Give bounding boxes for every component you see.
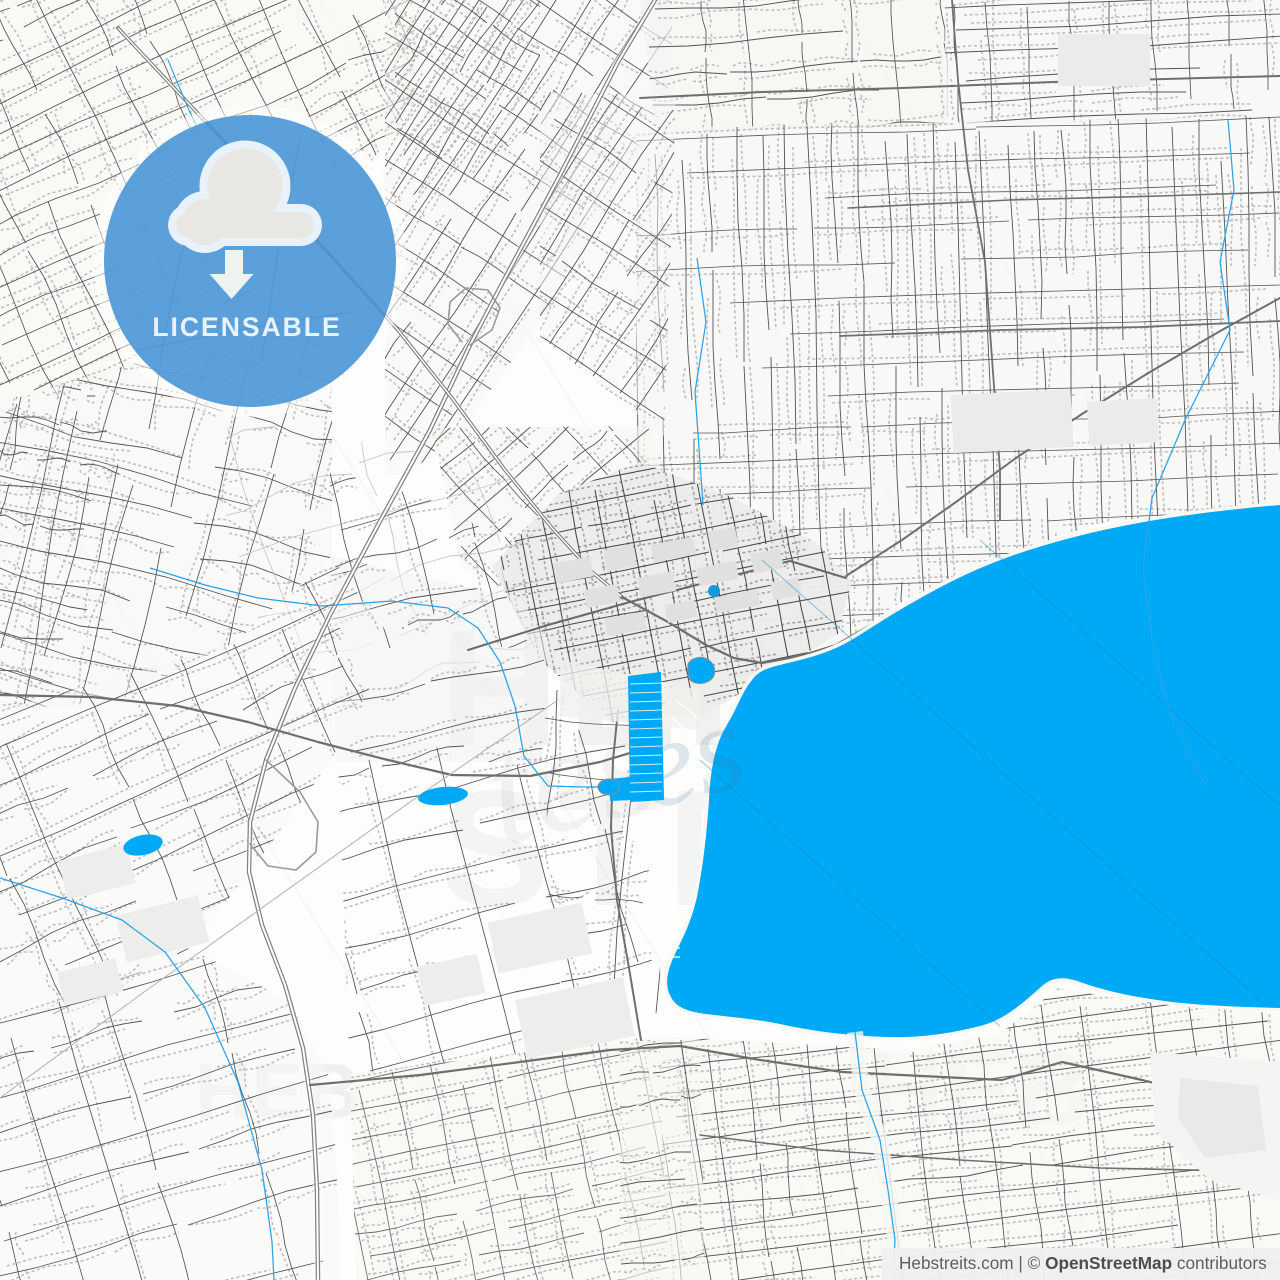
- svg-text:LICENSABLE: LICENSABLE: [152, 312, 341, 342]
- svg-text:Hebstreits.com | © OpenStreetM: Hebstreits.com | © OpenStreetMap contrib…: [899, 1253, 1267, 1273]
